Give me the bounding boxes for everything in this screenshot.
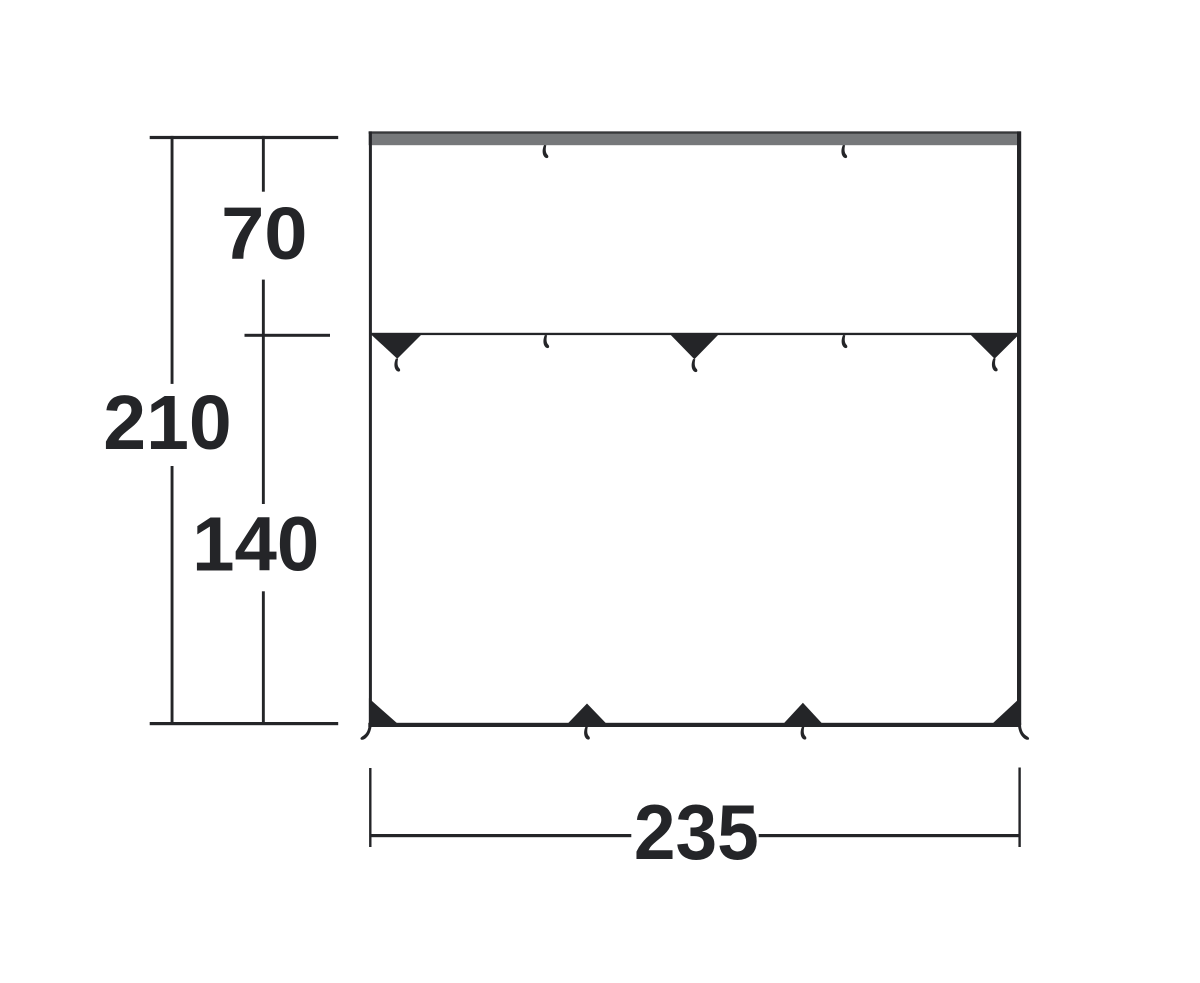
svg-text:235: 235 xyxy=(634,789,759,876)
svg-text:210: 210 xyxy=(103,380,231,466)
svg-text:70: 70 xyxy=(221,192,307,275)
svg-text:140: 140 xyxy=(192,502,319,587)
